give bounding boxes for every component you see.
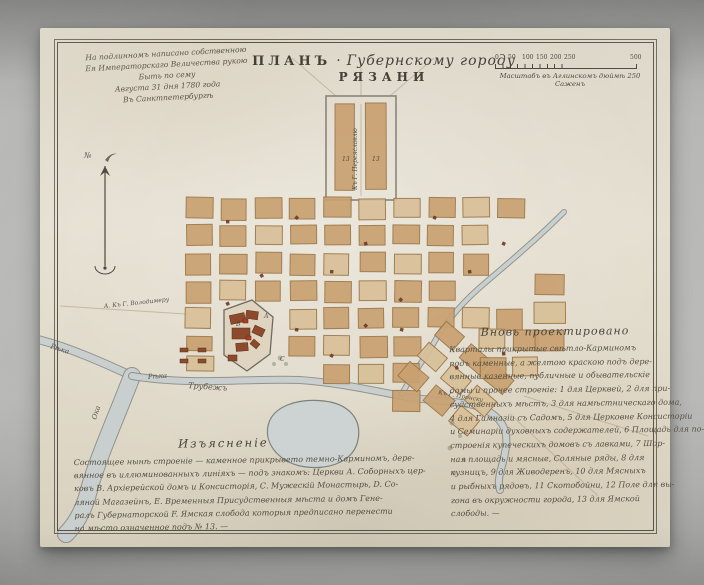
legend-explanation: Изъясненіе Состоящее нынѣ строеніе — кам…: [73, 434, 374, 535]
projected-line: слободы. —: [451, 505, 663, 521]
title-flourish: ·: [336, 53, 341, 69]
scale-caption: Масштабъ въ Аглинскомъ дюймѣ 250 Саженъ: [495, 72, 645, 88]
scale-tick: 100: [522, 54, 533, 61]
scale-bar: 0 50 100 150 200 250 500 Масштабъ въ Агл…: [495, 54, 655, 88]
scale-tick: 250: [564, 54, 575, 61]
newly-projected-heading: Вновь проектировано: [449, 324, 661, 339]
map-title: ПЛАНЪ · Губернскому городу РЯЗАНИ: [228, 50, 540, 84]
title-line-1: ПЛАНЪ · Губернскому городу: [228, 50, 540, 69]
scale-tick-end: 500: [630, 54, 641, 61]
legend-heading: Изъясненіе: [73, 434, 373, 452]
projected-line: гона въ окружности города, 13 для Ямской: [451, 492, 663, 508]
scale-tick: 0: [495, 54, 499, 61]
title-word-gubernsky: Губернскому городу: [347, 53, 516, 69]
scale-tick: 200: [550, 54, 561, 61]
scale-bar-line: [495, 64, 637, 69]
scale-tick-numbers: 0 50 100 150 200 250 500: [495, 54, 655, 63]
newly-projected-note: Вновь проектировано Кварталы прикрытые с…: [449, 324, 663, 521]
photo-of-framed-map: РѣкаОкаРѣкаТрубежъА. Къ Г. ВолодимеруКъ …: [0, 0, 704, 585]
map-sheet: РѣкаОкаРѣкаТрубежъА. Къ Г. ВолодимеруКъ …: [40, 28, 670, 547]
imperial-dedication: На подлинномъ написано собственною Ея Им…: [61, 43, 274, 109]
scale-tick: 50: [508, 54, 516, 61]
scale-tick: 150: [536, 54, 547, 61]
title-city-name: РЯЗАНИ: [228, 70, 540, 84]
